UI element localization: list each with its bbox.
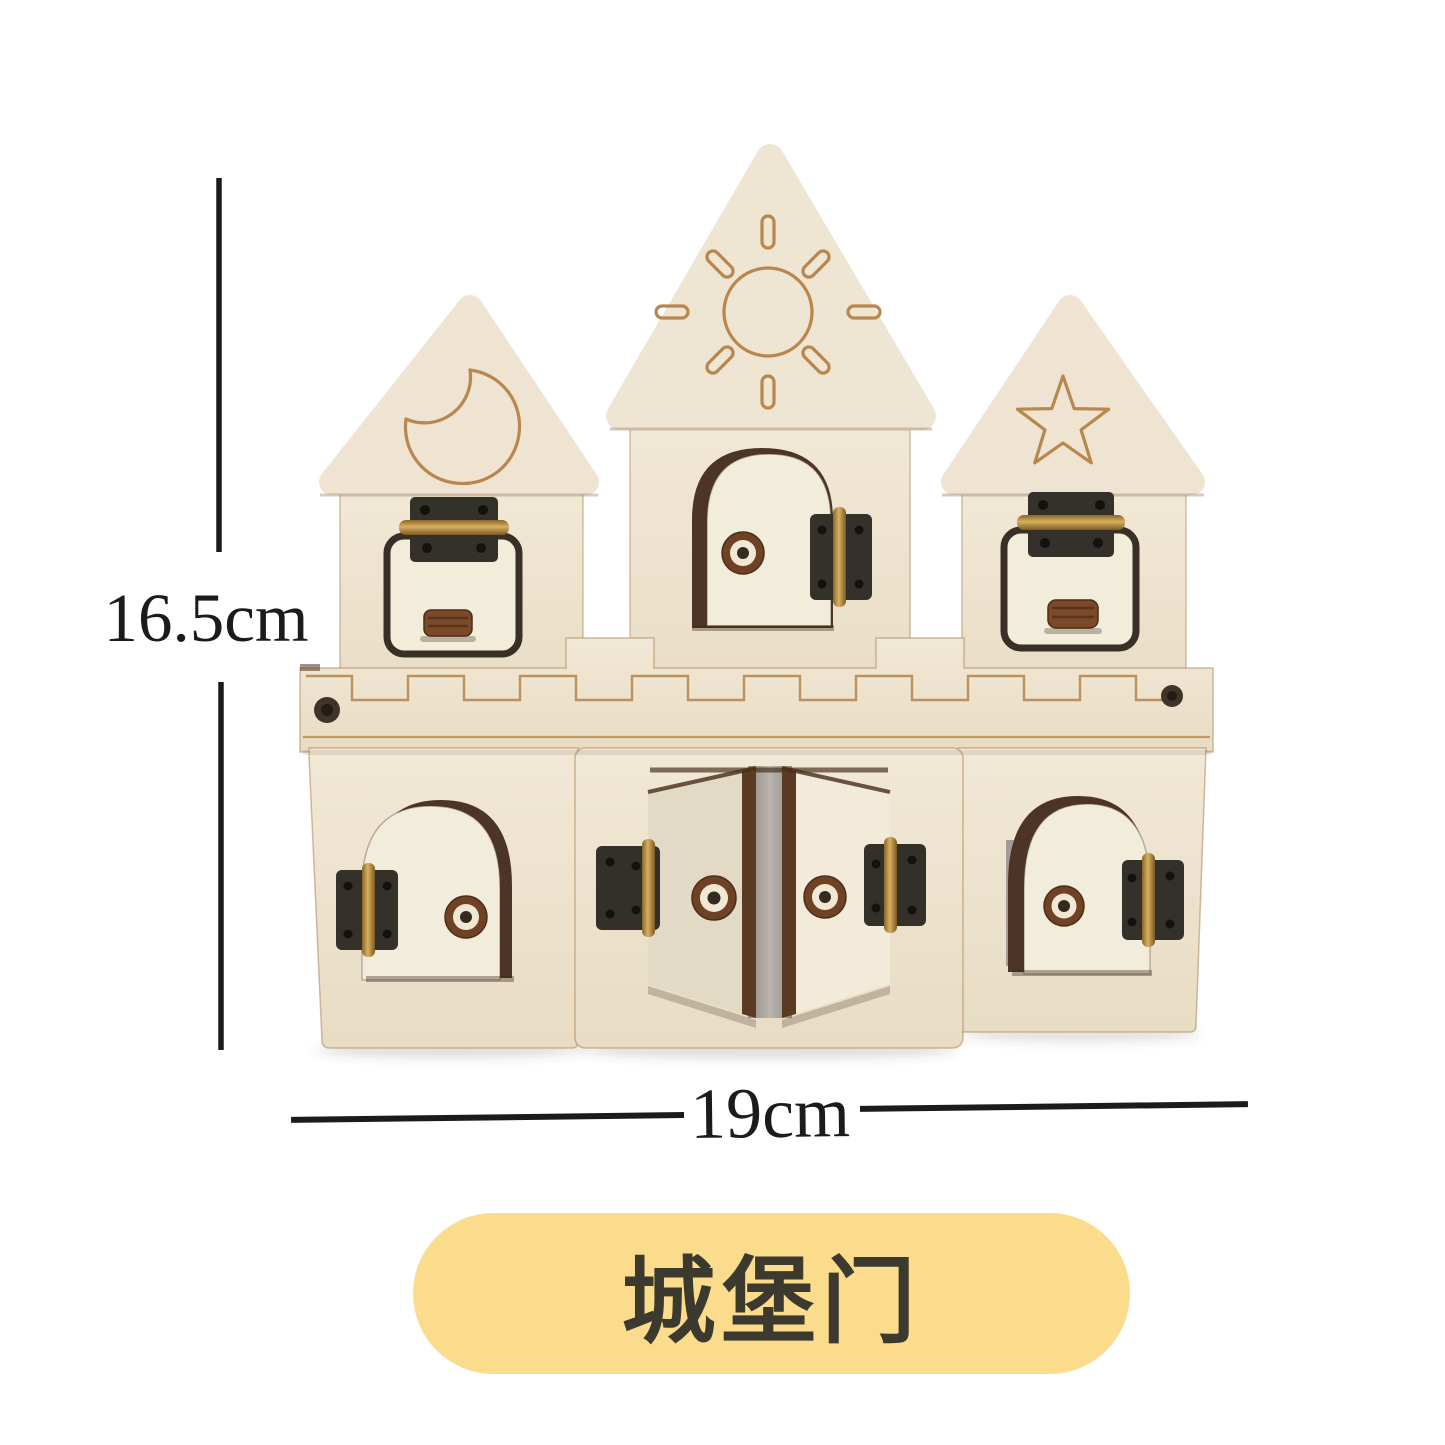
left-tower-roof — [332, 308, 586, 482]
right-tower-roof — [954, 308, 1192, 482]
left-tower — [320, 308, 598, 707]
left-latch-knob — [424, 610, 472, 636]
hinge-pin — [1017, 515, 1125, 530]
center-tower — [610, 158, 932, 720]
left-door-knob — [692, 876, 736, 920]
wall-corner-edge — [300, 664, 320, 671]
lower-right-wing — [958, 748, 1206, 1032]
center-door-knob — [722, 532, 764, 574]
hinge-pin — [884, 837, 897, 933]
height-dimension-label: 16.5cm — [103, 580, 308, 656]
hinge-pin — [642, 839, 655, 937]
left-tower-flap-door — [387, 497, 519, 654]
height-dimension: 16.5cm — [103, 178, 308, 1050]
hinge-pin — [1142, 853, 1155, 947]
left-wing-hinge — [336, 863, 398, 957]
center-door-hinge — [810, 507, 872, 607]
left-tower-hinge — [399, 497, 509, 562]
hinge-pin — [362, 863, 375, 957]
center-right-hinge — [864, 837, 926, 933]
width-dimension-line-left — [291, 1115, 684, 1120]
right-wing-hinge — [1122, 853, 1184, 947]
left-wing-knob — [445, 896, 487, 938]
right-door-knob — [804, 876, 846, 918]
arch-door-shadow — [366, 976, 514, 982]
latch-shadow — [1044, 628, 1102, 634]
hinge-pin — [833, 507, 846, 607]
right-tower-hinge — [1017, 492, 1125, 557]
right-tower-flap-door — [1004, 492, 1136, 648]
lower-left-wing — [309, 748, 578, 1048]
left-door-edge — [742, 768, 756, 1018]
left-door-panel — [648, 768, 756, 1028]
width-dimension-label: 19cm — [690, 1072, 851, 1154]
width-dimension: 19cm — [291, 1067, 1249, 1159]
band-bottom-shadow — [303, 750, 1211, 755]
arch-door-shadow — [1012, 970, 1152, 976]
right-latch-knob — [1048, 600, 1098, 628]
product-caption-pill: 城堡门 — [413, 1213, 1130, 1374]
right-tower — [942, 308, 1204, 707]
screw-hole-left-center — [321, 704, 333, 716]
screw-hole-right-center — [1167, 691, 1177, 701]
hinge-pin — [399, 520, 509, 535]
product-caption-label: 城堡门 — [621, 1226, 921, 1362]
width-dimension-line-right — [860, 1104, 1248, 1109]
product-photo: 16.5cm 19cm 城堡门 — [0, 0, 1445, 1445]
arch-door-shadow — [692, 625, 834, 631]
right-wing-knob — [1044, 886, 1084, 926]
right-door-edge — [782, 768, 796, 1018]
latch-shadow — [420, 636, 476, 642]
center-left-hinge — [596, 839, 660, 937]
